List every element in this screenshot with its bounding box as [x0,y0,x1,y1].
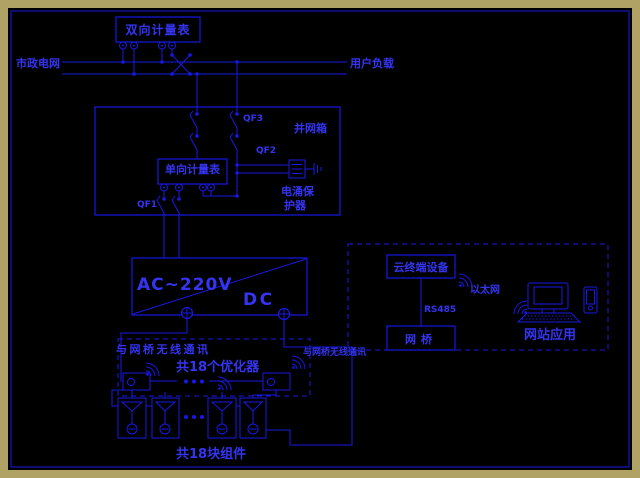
wireless-right-label: 与网桥无线通讯 [303,346,366,358]
ellipsis-dots [184,380,204,384]
user-load-label: 用户负载 [350,56,394,70]
cad-diagram-canvas: 双向计量表 市政电网 用户负载 并网箱 [0,0,640,478]
ellipsis-dots [184,415,204,419]
bidirectional-meter-label: 双向计量表 [125,22,190,37]
module-count-label: 共18块组件 [176,446,246,462]
qf1-label: QF1 [137,200,157,210]
wireless-left-label: 与网桥无线通讯 [116,342,211,356]
inverter-ac-label: AC~220V [137,275,233,295]
qf3-label: QF3 [243,114,263,124]
ethernet-label: 以太网 [470,283,500,296]
drawing-background [8,8,632,470]
spd-label-line2: 护器 [284,198,307,212]
rs485-label: RS485 [424,305,456,315]
unidirectional-meter-label: 单向计量表 [165,162,221,176]
cloud-terminal-label: 云终端设备 [394,260,450,274]
bridge-label: 网桥 [405,332,437,346]
web-app-label: 网站应用 [524,327,576,343]
optimizer-count-label: 共18个优化器 [176,359,260,375]
pv-system-schematic: 双向计量表 市政电网 用户负载 并网箱 [0,0,640,478]
qf2-label: QF2 [256,146,276,156]
grid-tie-box-label: 并网箱 [294,121,327,135]
municipal-grid-label: 市政电网 [16,56,60,70]
spd-label-line1: 电涌保 [281,184,315,198]
inverter-dc-label: DC [243,290,275,310]
